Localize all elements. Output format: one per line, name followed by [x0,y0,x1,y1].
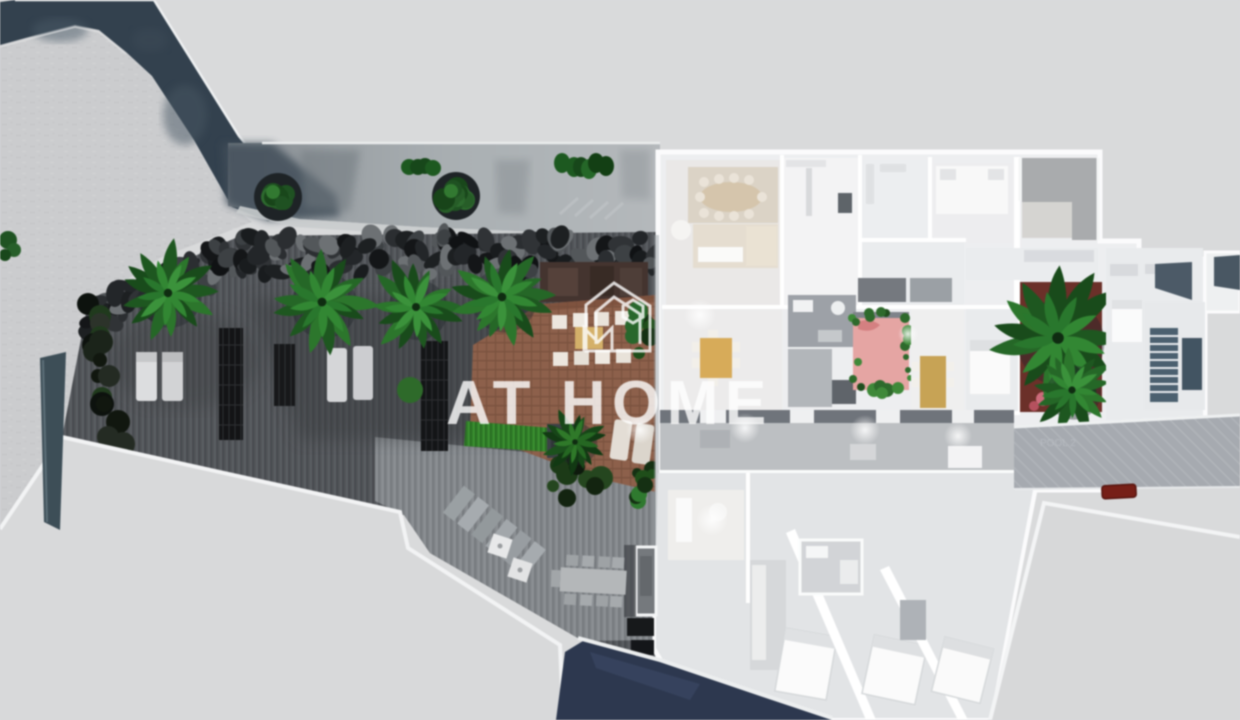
svg-text:AT HOME: AT HOME [446,369,773,438]
svg-text:POOL 2: POOL 2 [1040,438,1076,449]
